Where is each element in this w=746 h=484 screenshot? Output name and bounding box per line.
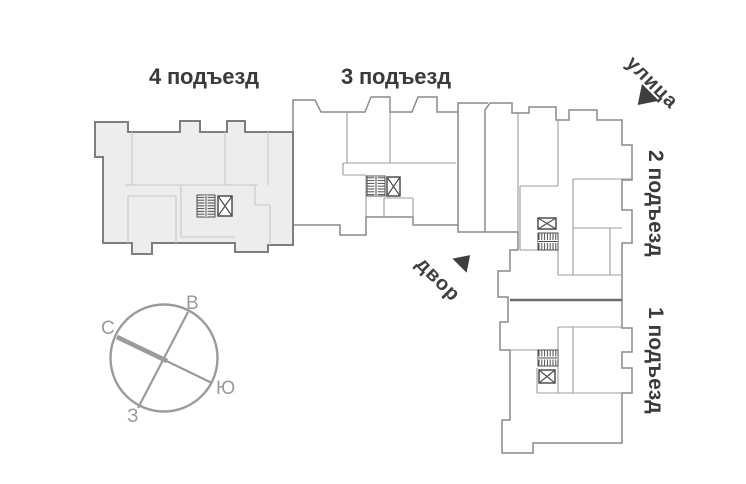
stairs-icon — [538, 350, 558, 366]
elevator-icon — [539, 370, 555, 383]
stairs-icon — [197, 195, 215, 217]
elevator-icon — [387, 177, 400, 196]
building-section-entrance-3[interactable] — [293, 97, 458, 235]
courtyard-notch-connector — [458, 103, 488, 232]
entrance-3-label: 3 подъезд — [341, 64, 451, 90]
building-section-entrances-1-2[interactable] — [458, 103, 632, 453]
elevator-icon — [218, 196, 232, 216]
compass-west-label: З — [127, 407, 138, 426]
compass-north-pointer — [117, 337, 167, 361]
elevator-icon — [538, 218, 556, 229]
building-section-entrance-4[interactable] — [95, 121, 293, 254]
entrance-1-label: 1 подъезд — [645, 307, 666, 414]
entrance-4-label: 4 подъезд — [149, 64, 259, 90]
stairs-icon — [367, 176, 385, 196]
stairs-icon — [538, 233, 558, 250]
floor-plan-canvas: 4 подъезд 3 подъезд 2 подъезд 1 подъезд … — [0, 0, 746, 484]
compass-south-label: Ю — [216, 379, 235, 398]
compass-east-label: В — [186, 294, 199, 313]
entrance-2-label: 2 подъезд — [645, 150, 666, 257]
compass-north-label: С — [101, 319, 115, 338]
compass-rose — [111, 305, 218, 412]
